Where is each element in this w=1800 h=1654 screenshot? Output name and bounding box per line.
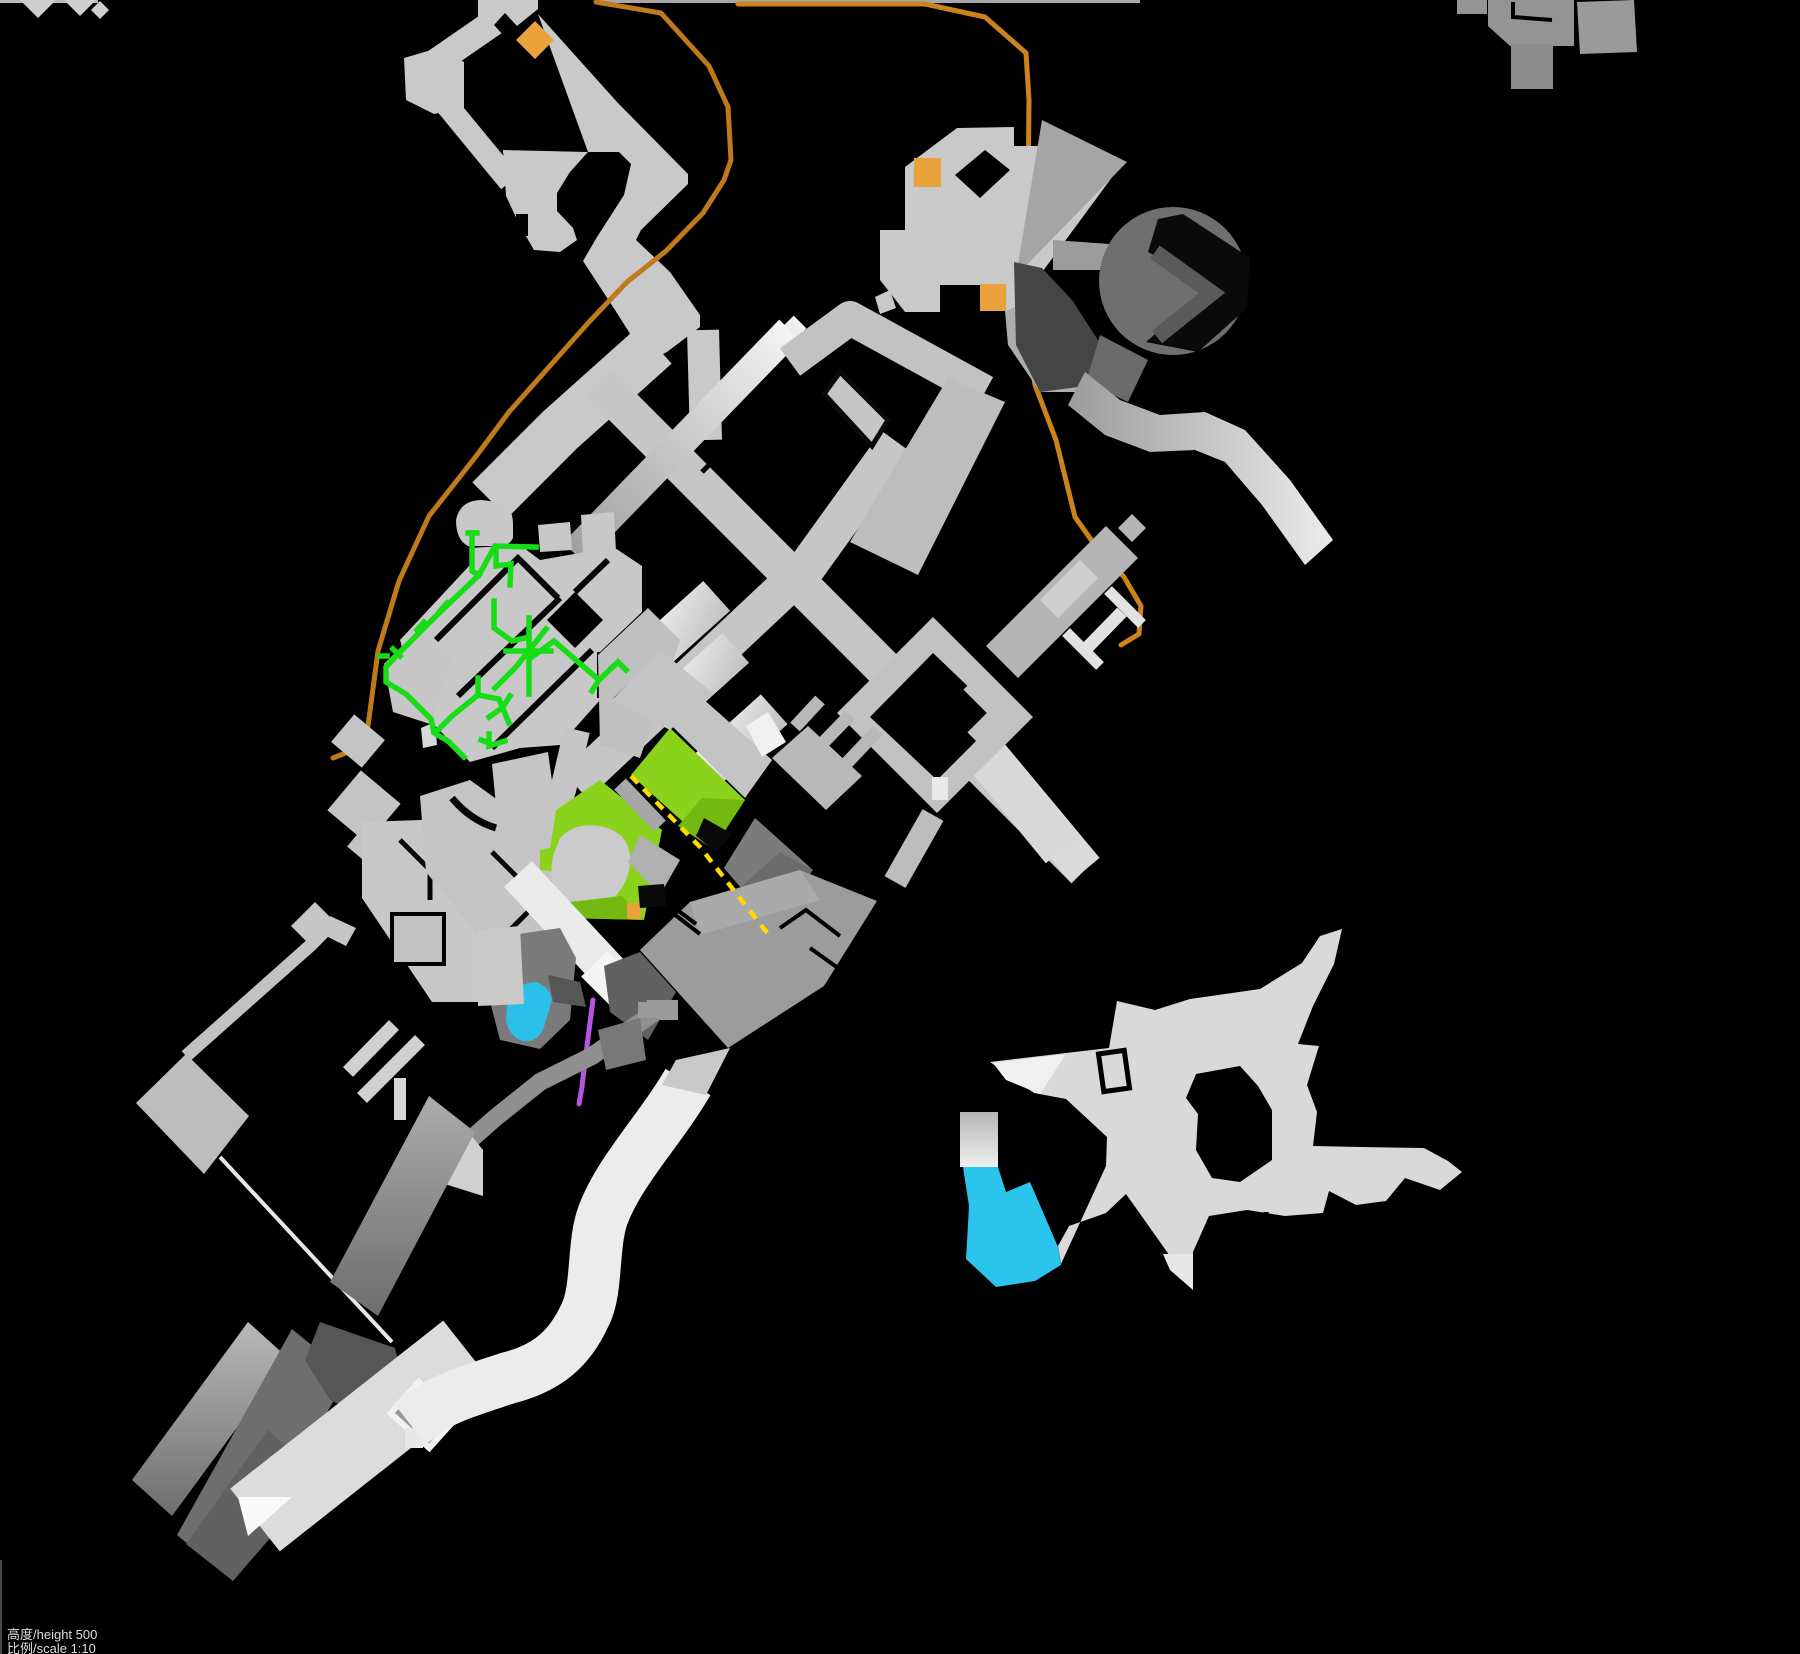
svg-text:比例/scale 1:10: 比例/scale 1:10 bbox=[7, 1641, 96, 1654]
svg-text:高度/height 500: 高度/height 500 bbox=[7, 1627, 97, 1642]
